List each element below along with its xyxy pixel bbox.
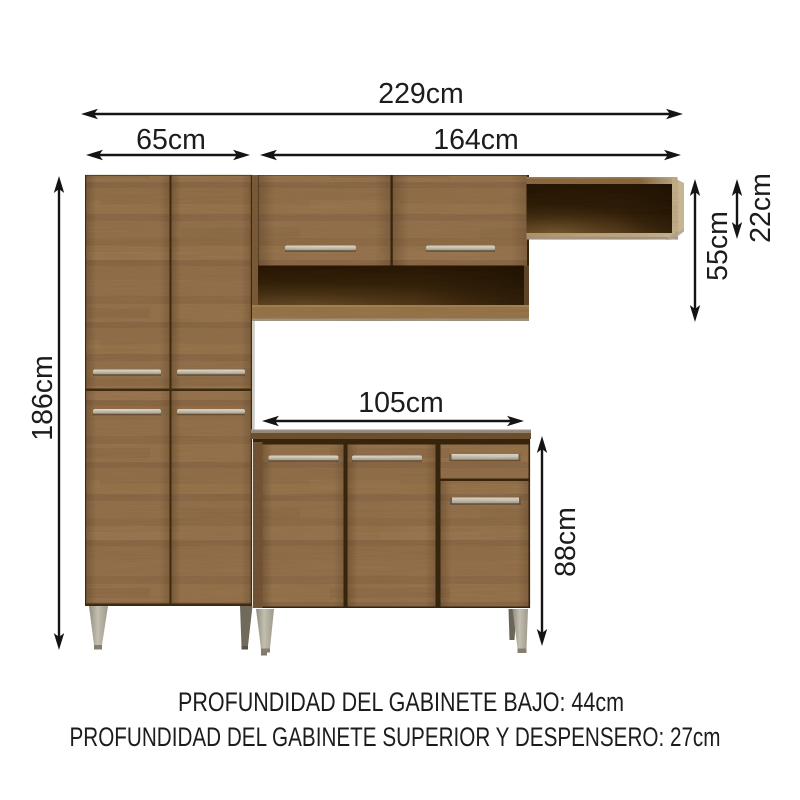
svg-text:55cm: 55cm bbox=[702, 211, 734, 281]
svg-text:22cm: 22cm bbox=[745, 173, 777, 243]
svg-text:186cm: 186cm bbox=[27, 355, 59, 441]
svg-text:88cm: 88cm bbox=[550, 507, 582, 577]
svg-text:229cm: 229cm bbox=[378, 78, 464, 110]
svg-text:164cm: 164cm bbox=[433, 124, 519, 156]
svg-text:PROFUNDIDAD DEL GABINETE BAJO:: PROFUNDIDAD DEL GABINETE BAJO: 44cm bbox=[178, 687, 624, 717]
svg-text:105cm: 105cm bbox=[358, 387, 444, 419]
svg-text:65cm: 65cm bbox=[136, 124, 206, 156]
svg-text:PROFUNDIDAD DEL GABINETE SUPER: PROFUNDIDAD DEL GABINETE SUPERIOR Y DESP… bbox=[70, 722, 721, 752]
